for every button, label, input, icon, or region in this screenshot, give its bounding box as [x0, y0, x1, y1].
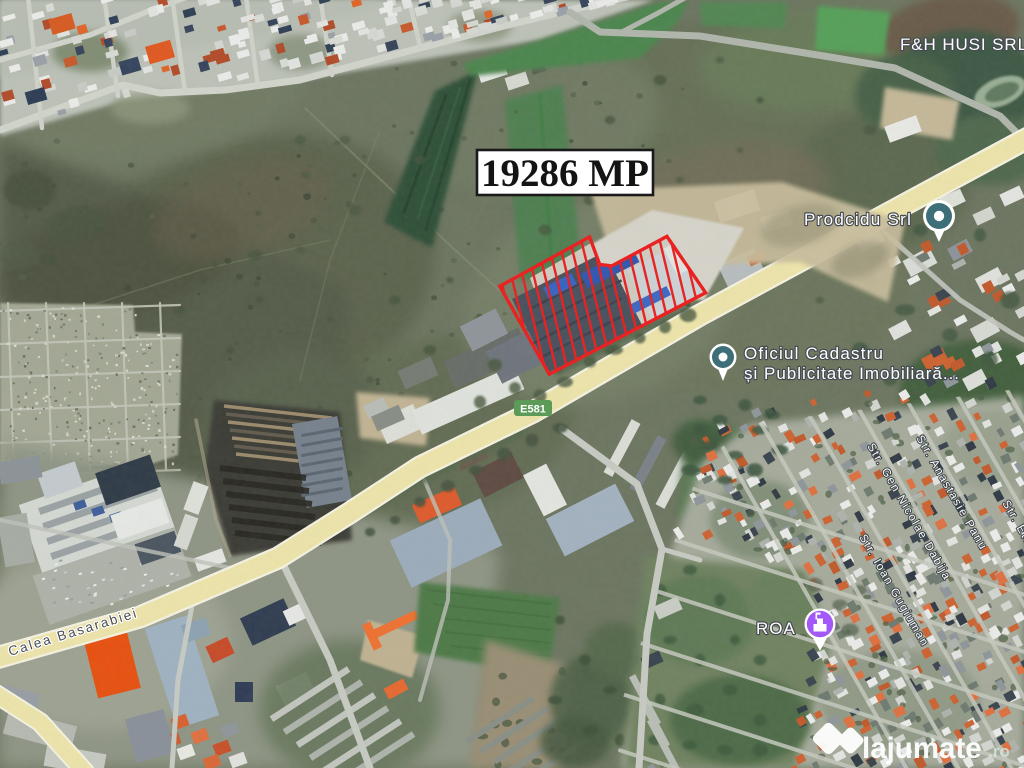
svg-text:Oficiul Cadastru: Oficiul Cadastru: [744, 344, 884, 363]
svg-text:lajumate: lajumate: [862, 732, 982, 765]
svg-text:E581: E581: [520, 404, 546, 416]
svg-text:19286 MP: 19286 MP: [481, 152, 649, 195]
svg-text:Prodcidu Srl: Prodcidu Srl: [804, 210, 912, 229]
svg-text:.ro: .ro: [988, 742, 1010, 761]
svg-text:și Publicitate Imobiliară...: și Publicitate Imobiliară...: [744, 364, 960, 383]
svg-text:ROA: ROA: [756, 619, 796, 638]
svg-text:F&H HUSI SRL: F&H HUSI SRL: [900, 35, 1024, 54]
